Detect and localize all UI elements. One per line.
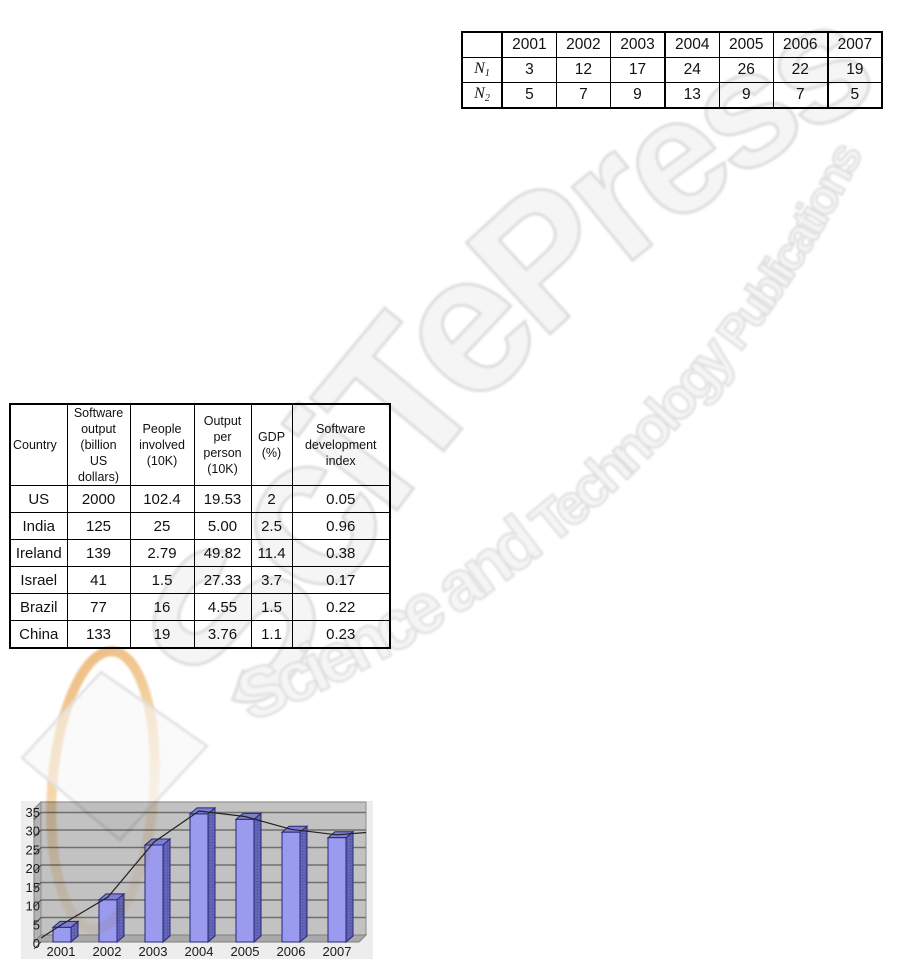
svg-text:15: 15 xyxy=(26,880,40,895)
svg-text:2003: 2003 xyxy=(139,944,168,959)
svg-text:0: 0 xyxy=(33,936,40,951)
svg-text:5: 5 xyxy=(33,917,40,932)
svg-text:10: 10 xyxy=(26,899,40,914)
svg-text:20: 20 xyxy=(26,861,40,876)
svg-text:35: 35 xyxy=(26,805,40,820)
svg-text:2005: 2005 xyxy=(231,944,260,959)
svg-text:30: 30 xyxy=(26,824,40,839)
svg-text:2004: 2004 xyxy=(185,944,214,959)
svg-text:2001: 2001 xyxy=(47,944,76,959)
svg-text:2002: 2002 xyxy=(93,944,122,959)
svg-text:2006: 2006 xyxy=(277,944,306,959)
svg-text:25: 25 xyxy=(26,842,40,857)
svg-text:2007: 2007 xyxy=(323,944,352,959)
